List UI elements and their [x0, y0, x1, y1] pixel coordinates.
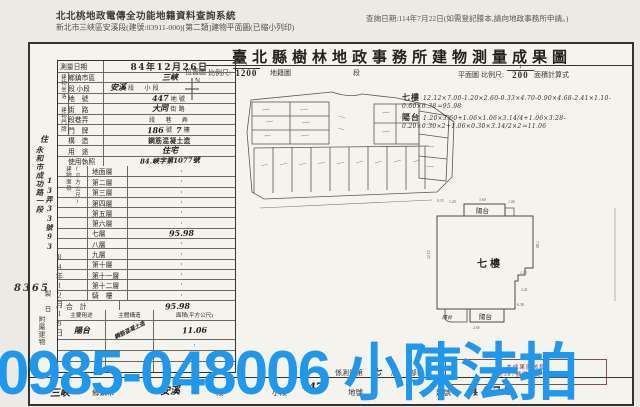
- location-scale-fraction: 1 1200: [233, 63, 260, 78]
- svg-text:7.00: 7.00: [535, 241, 539, 248]
- plan-balcony-bottom-label: 陽台: [479, 312, 492, 321]
- svg-text:6.38: 6.38: [517, 303, 524, 307]
- table-row: 段 小段 安溪 段 小段: [58, 82, 235, 93]
- floor-row: 第三層 ·: [58, 187, 235, 197]
- plan-ratio-label: 比例尺:: [481, 70, 504, 80]
- table-row: 測量日期 84年12月26日: [58, 61, 235, 72]
- table-row: 段巷弄 段 巷 弄: [58, 114, 235, 125]
- attached-header-row: 主要用途 主體構造 面積(平方公尺): [58, 310, 235, 320]
- cadastral-map-label: 地籍圖: [270, 68, 291, 78]
- table-row: 構 造 鋼筋混凝土造: [58, 135, 235, 146]
- table-row: 鄉鎮市區 三峽: [58, 72, 235, 83]
- plan-floor-label: 七樓: [477, 257, 503, 270]
- arcade-row: 騎 樓 ·: [58, 290, 235, 300]
- table-row: 地 號 447 地號: [58, 93, 235, 104]
- margin-char: 住: [40, 134, 48, 145]
- plan-balcony-top-label: 陽台: [476, 206, 489, 215]
- floor-row: 第十二層 ·: [58, 279, 235, 289]
- calc-balcony-formula: 1.20×3.60+1.06×1.06×3.14/4+1.06×3.28-0.2…: [402, 115, 566, 130]
- plan-label: 平面圖: [458, 70, 479, 80]
- floor-area-section: 地面層 · 第二層 · 第三層 · 第四層 · 第五層 ·: [58, 166, 235, 310]
- calc-balcony-label: 陽台: [402, 113, 420, 122]
- system-title: 北北桃地政電傳全功能地籍資料查詢系統: [56, 8, 236, 22]
- table-row: 用 途 住宅: [58, 145, 235, 156]
- section-blank-label: 段: [353, 68, 360, 78]
- plan-scale-fraction: 1 200: [507, 65, 534, 80]
- floor-row: 第五層 ·: [58, 207, 235, 217]
- calc-floor-formula: 12.12×7.00-1.20×2.60-0.33×4.70-0.90×4.68…: [402, 95, 611, 110]
- floor-row: 第十層 ·: [58, 259, 235, 269]
- query-date: 查詢日期:114年7月22日(如需登記謄本,請向地政事務所申請。): [366, 13, 568, 24]
- table-row: 街 路 大同 街路: [58, 103, 235, 114]
- table-row: 門 牌 186 號 7 樓: [58, 124, 235, 135]
- floor-row: 第十一層 ·: [58, 269, 235, 279]
- svg-text:0.33: 0.33: [437, 199, 444, 203]
- calc-floor-label: 七樓: [402, 93, 420, 102]
- svg-text:1.10: 1.10: [520, 271, 527, 275]
- floor-row: 第四層 ·: [58, 197, 235, 207]
- table-row: 使用執照 84.峽字第1077號: [58, 156, 235, 167]
- margin-receipt-number: 8365: [14, 283, 50, 294]
- svg-text:1.20: 1.20: [449, 200, 456, 204]
- title-underline: [206, 65, 632, 66]
- floor-row: 地面層 ·: [58, 166, 235, 176]
- floor-row: 八層 ·: [58, 238, 235, 248]
- area-calculation-block: 七樓12.12×7.00-1.20×2.60-0.33×4.70-0.90×4.…: [402, 94, 634, 134]
- svg-text:12.12: 12.12: [427, 250, 431, 259]
- floor-row: 九層 ·: [58, 248, 235, 258]
- svg-text:2.41: 2.41: [521, 288, 528, 292]
- plan-balcony-bottom-left-label: 陽台: [442, 314, 453, 321]
- margin-address-line2: 13弄33號93: [44, 176, 54, 276]
- document-subtitle: 新北市三峽區安溪段(建號:03911-000)[第二類]建物平面圖(已縮小列印): [56, 22, 294, 33]
- floor-row: 第二層 ·: [58, 176, 235, 186]
- total-row: 合 計 95.98: [58, 300, 235, 310]
- area-calc-label: 面積計算式: [534, 70, 569, 80]
- svg-text:1.06: 1.06: [508, 200, 515, 204]
- info-section: 測量日期 84年12月26日 鄉鎮市區 三峽 段 小段 安溪 段 小段 地 號 …: [58, 61, 235, 166]
- watermark-text: 0985-048006 小陳法拍: [0, 322, 640, 407]
- floor-row: 第六層 ·: [58, 217, 235, 227]
- floor-row-seventh: 七層 95.98: [58, 228, 235, 238]
- scanned-document-page: 北北桃地政電傳全功能地籍資料查詢系統 新北市三峽區安溪段(建號:03911-00…: [0, 0, 640, 407]
- svg-text:3.60: 3.60: [479, 198, 486, 202]
